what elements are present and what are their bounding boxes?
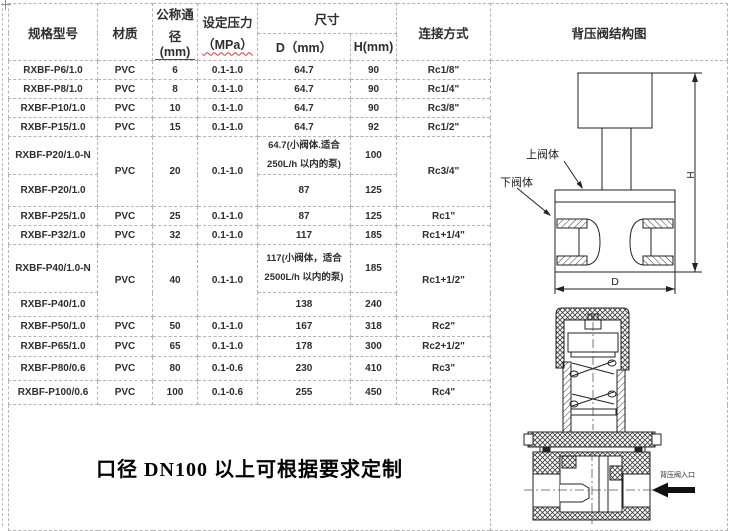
table-cell: 255: [258, 381, 351, 405]
valve-cap: [578, 73, 652, 128]
table-cell: 100: [351, 137, 397, 175]
table-cell: 0.1-1.0: [198, 99, 258, 118]
label-lower-valve-body: 下阀体: [500, 175, 533, 189]
table-cell: 125: [351, 175, 397, 207]
table-cell: RXBF-P25/1.0: [9, 207, 98, 226]
col-header-dim-h: H(mm): [351, 33, 397, 60]
col-header-size: 尺寸: [258, 4, 397, 34]
table-cell: 65: [153, 337, 198, 357]
custom-order-note: 口径 DN100 以上可根据要求定制: [9, 405, 491, 531]
table-cell: 0.1-0.6: [198, 357, 258, 381]
table-cell: 64.7: [258, 80, 351, 99]
table-cell: RXBF-P10/1.0: [9, 99, 98, 118]
table-cell: Rc2": [397, 317, 491, 337]
col-header-spec-model: 规格型号: [9, 4, 98, 61]
table-cell: 185: [351, 226, 397, 245]
table-cell: 0.1-1.0: [198, 137, 258, 207]
table-cell: 80: [153, 357, 198, 381]
table-cell: Rc1": [397, 207, 491, 226]
table-cell: 90: [351, 61, 397, 80]
table-cell: PVC: [98, 337, 153, 357]
table-cell: 0.1-0.6: [198, 381, 258, 405]
set-pressure-unit: （MPa）: [202, 34, 253, 53]
col-header-material: 材质: [98, 4, 153, 61]
table-cell: RXBF-P20/1.0: [9, 175, 98, 207]
valve-outline-drawing: 上阀体 下阀体 H D: [490, 57, 727, 300]
table-cell: 0.1-1.0: [198, 80, 258, 99]
table-cell: RXBF-P50/1.0: [9, 317, 98, 337]
table-cell: Rc3/8": [397, 99, 491, 118]
table-cell: 230: [258, 357, 351, 381]
table-cell: 32: [153, 226, 198, 245]
table-cell: 240: [351, 293, 397, 317]
table-cell: PVC: [98, 80, 153, 99]
table-cell: Rc3": [397, 357, 491, 381]
table-cell: 8: [153, 80, 198, 99]
inlet-arrow-icon: [652, 483, 695, 498]
table-cell: 0.1-1.0: [198, 207, 258, 226]
table-cell: 0.1-1.0: [198, 337, 258, 357]
table-cell: Rc1+1/4": [397, 226, 491, 245]
table-cell: RXBF-P32/1.0: [9, 226, 98, 245]
table-cell: 90: [351, 99, 397, 118]
table-cell: 20: [153, 137, 198, 207]
handle-bar: [5, 0, 6, 10]
table-cell: RXBF-P40/1.0: [9, 293, 98, 317]
table-cell: PVC: [98, 137, 153, 207]
table-cell: 318: [351, 317, 397, 337]
table-cell: Rc1/4": [397, 80, 491, 99]
table-cell: 300: [351, 337, 397, 357]
table-cell: 138: [258, 293, 351, 317]
table-cell: 0.1-1.0: [198, 61, 258, 80]
table-cell: PVC: [98, 245, 153, 317]
document-page: 规格型号 材质 公称通 径(mm) 设定压力 （MPa） 尺寸 连接方式 背压阀…: [0, 0, 730, 531]
header-row-1: 规格型号 材质 公称通 径(mm) 设定压力 （MPa） 尺寸 连接方式 背压阀…: [9, 4, 728, 34]
table-cell: Rc2+1/2": [397, 337, 491, 357]
label-dim-d: D: [611, 276, 619, 288]
table-cell: 117: [258, 226, 351, 245]
table-cell: 125: [351, 207, 397, 226]
table-cell: PVC: [98, 118, 153, 137]
table-cell: Rc4": [397, 381, 491, 405]
label-dim-h: H: [684, 171, 695, 178]
table-cell: RXBF-P40/1.0-N: [9, 245, 98, 293]
table-cell: RXBF-P8/1.0: [9, 80, 98, 99]
table-cell: RXBF-P20/1.0-N: [9, 137, 98, 175]
table-cell: 185: [351, 245, 397, 293]
col-header-set-pressure: 设定压力 （MPa）: [198, 4, 258, 61]
table-cell: RXBF-P100/0.6: [9, 381, 98, 405]
table-cell: RXBF-P80/0.6: [9, 357, 98, 381]
set-pressure-line1: 设定压力: [200, 12, 255, 31]
table-cell: Rc1/2": [397, 118, 491, 137]
table-cell: Rc1+1/2": [397, 245, 491, 317]
table-cell: 10: [153, 99, 198, 118]
nominal-diameter-line2: 径(mm): [155, 26, 195, 60]
table-cell: 25: [153, 207, 198, 226]
table-cell: 87: [258, 175, 351, 207]
left-port: [557, 219, 600, 265]
table-cell: 6: [153, 61, 198, 80]
valve-neck: [602, 128, 631, 190]
table-cell: 64.7: [258, 99, 351, 118]
label-inlet: 背压阀入口: [660, 470, 695, 479]
table-cell: Rc1/8": [397, 61, 491, 80]
table-cell: 50: [153, 317, 198, 337]
col-header-nominal-diameter: 公称通 径(mm): [153, 4, 198, 61]
table-cell: 15: [153, 118, 198, 137]
table-cell: 100: [153, 381, 198, 405]
col-header-dim-d: D（mm）: [258, 33, 351, 60]
nominal-diameter-line1: 公称通: [155, 4, 195, 23]
table-cell: 92: [351, 118, 397, 137]
right-port: [630, 219, 673, 265]
table-cell: 0.1-1.0: [198, 245, 258, 317]
table-cell: PVC: [98, 357, 153, 381]
table-cell: 87: [258, 207, 351, 226]
col-header-connection: 连接方式: [397, 4, 491, 61]
table-cell: 117(小阀体，适合 2500L/h 以内的泵): [258, 245, 351, 293]
table-cell: PVC: [98, 381, 153, 405]
table-cell: 410: [351, 357, 397, 381]
table-cell: RXBF-P6/1.0: [9, 61, 98, 80]
table-cell: 0.1-1.0: [198, 226, 258, 245]
table-cell: 90: [351, 80, 397, 99]
table-cell: 0.1-1.0: [198, 118, 258, 137]
table-cell: RXBF-P65/1.0: [9, 337, 98, 357]
col-header-structure-diagram: 背压阀结构图: [491, 4, 728, 61]
table-cell: PVC: [98, 207, 153, 226]
page-left-border: [2, 3, 3, 526]
table-cell: 64.7(小阀体.适合 250L/h 以内的泵): [258, 137, 351, 175]
table-cell: PVC: [98, 226, 153, 245]
table-cell: RXBF-P15/1.0: [9, 118, 98, 137]
table-cell: 0.1-1.0: [198, 317, 258, 337]
table-cell: 450: [351, 381, 397, 405]
table-cell: 40: [153, 245, 198, 317]
table-cell: PVC: [98, 61, 153, 80]
table-cell: Rc3/4": [397, 137, 491, 207]
table-cell: 178: [258, 337, 351, 357]
table-cell: PVC: [98, 317, 153, 337]
table-cell: 64.7: [258, 118, 351, 137]
label-upper-valve-body: 上阀体: [526, 147, 559, 161]
valve-section-drawing: 背压阀入口: [490, 300, 727, 527]
table-cell: PVC: [98, 99, 153, 118]
table-cell: 64.7: [258, 61, 351, 80]
section-flange: [528, 432, 655, 447]
table-cell: 167: [258, 317, 351, 337]
